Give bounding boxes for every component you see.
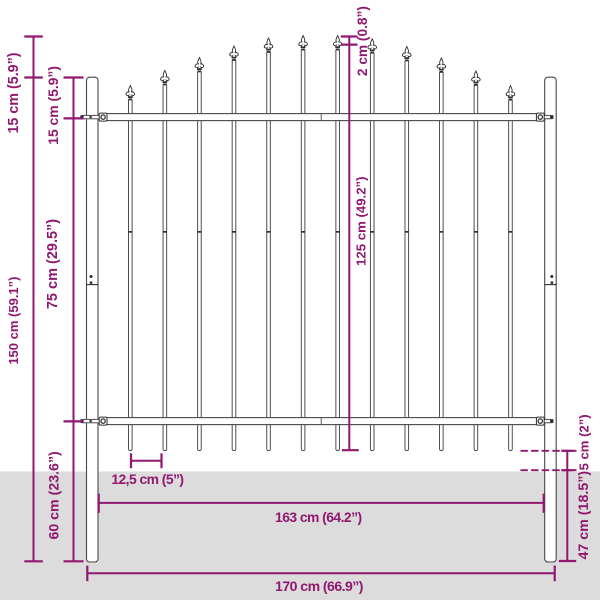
- svg-text:150 cm (59.1”): 150 cm (59.1”): [6, 277, 21, 365]
- svg-text:15 cm (5.9”): 15 cm (5.9”): [45, 66, 61, 145]
- svg-text:2 cm (0.8”): 2 cm (0.8”): [355, 6, 370, 76]
- svg-text:60 cm (23.6”): 60 cm (23.6”): [46, 451, 62, 540]
- svg-text:47 cm (18.5”): 47 cm (18.5”): [576, 471, 592, 560]
- svg-text:75 cm (29.5”): 75 cm (29.5”): [45, 219, 61, 309]
- svg-text:170 cm (66.9”): 170 cm (66.9”): [275, 578, 363, 594]
- svg-text:5 cm (2”): 5 cm (2”): [577, 414, 592, 470]
- svg-text:15 cm (5.9”): 15 cm (5.9”): [6, 52, 22, 133]
- svg-text:163 cm (64.2”): 163 cm (64.2”): [275, 509, 362, 525]
- svg-text:12,5 cm (5”): 12,5 cm (5”): [111, 471, 183, 487]
- svg-text:125 cm (49.2”): 125 cm (49.2”): [353, 176, 368, 265]
